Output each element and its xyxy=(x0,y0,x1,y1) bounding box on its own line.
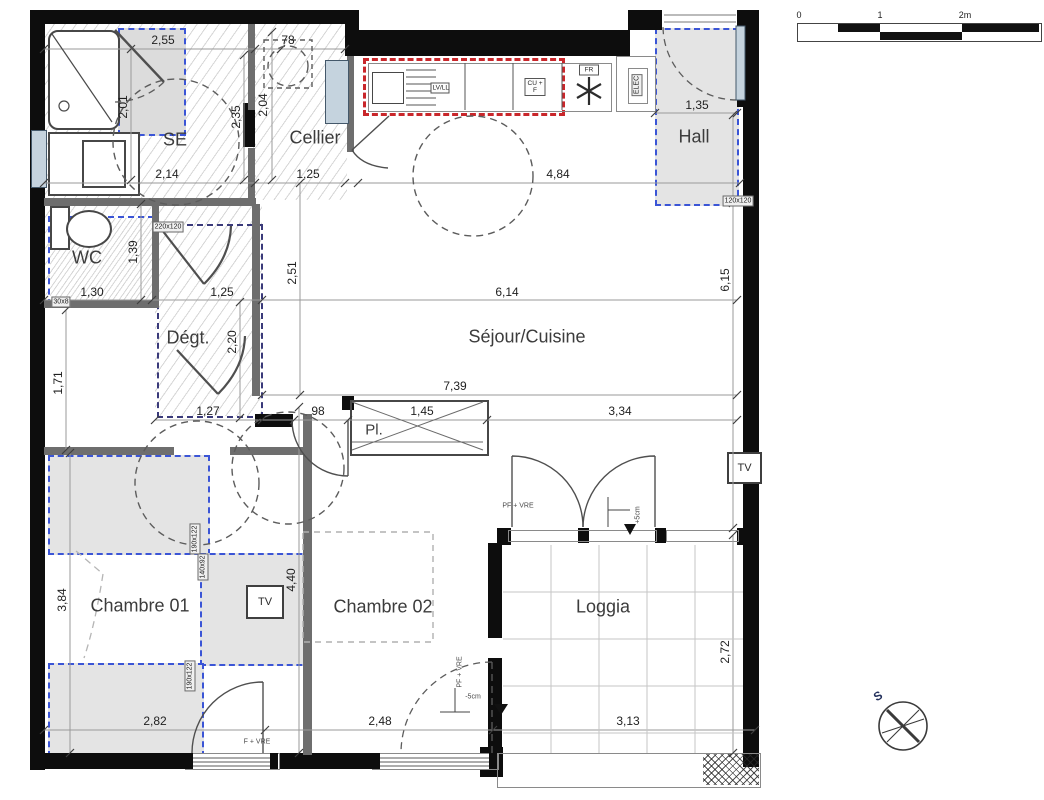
tag-ch1-a: 190x122 xyxy=(190,524,201,555)
dim-loggia-w: 3,13 xyxy=(616,714,639,728)
fridge-asterisk-icon xyxy=(577,77,601,105)
room-label-ch1: Chambre 01 xyxy=(90,596,189,617)
dim-cellier: 1,25 xyxy=(296,167,319,181)
note-plus5: +5cm xyxy=(635,506,642,523)
dim-pl: 1,45 xyxy=(410,404,433,418)
room-label-loggia: Loggia xyxy=(576,597,630,618)
entry-door-leaf xyxy=(664,15,745,100)
dim-hall: 1,35 xyxy=(685,98,708,112)
tag-hall: 120x120 xyxy=(723,196,754,207)
dim-sejour-w2: 7,39 xyxy=(443,379,466,393)
dim-sejour-w: 6,14 xyxy=(495,285,518,299)
dim-degt-w: 1,25 xyxy=(210,285,233,299)
dim-kitchen: 4,84 xyxy=(546,167,569,181)
room-label-hall: Hall xyxy=(678,127,709,148)
dim-se-top: 2,55 xyxy=(151,33,174,47)
dim-se-h2: 2,35 xyxy=(229,105,243,128)
scale-tick-2m: 2m xyxy=(959,10,972,20)
window-glazing-lines xyxy=(193,758,489,766)
room-label-se: SE xyxy=(163,130,187,151)
dim-cellier-h: 2,04 xyxy=(256,93,270,116)
dim-se-h: 2,01 xyxy=(116,95,130,118)
room-label-sejour: Séjour/Cuisine xyxy=(468,327,585,348)
dim-se-bottom: 2,14 xyxy=(155,167,178,181)
compass-icon xyxy=(879,702,927,750)
scale-seg xyxy=(880,32,962,40)
dimension-ticks xyxy=(40,28,759,757)
appliance-cu-f: CU + F xyxy=(525,78,546,96)
scale-tick-1: 1 xyxy=(877,10,882,20)
dim-opening: 98 xyxy=(311,404,324,418)
dim-wc-h: 1,39 xyxy=(126,240,140,263)
tag-ch1-b: 140x92 xyxy=(198,554,209,581)
dim-ch1-w: 2,82 xyxy=(143,714,166,728)
shower-detail xyxy=(52,34,112,122)
dim-sejour-h: 6,15 xyxy=(718,268,732,291)
room-label-wc: WC xyxy=(72,248,102,269)
scale-seg xyxy=(962,24,1039,32)
note-pf-vre: PF + VRE xyxy=(502,503,533,510)
dim-ch1-h: 3,84 xyxy=(55,588,69,611)
appliance-lv-ll: LV/LL xyxy=(431,83,450,94)
floor-plan: TV TV xyxy=(0,0,1044,800)
scale-seg xyxy=(838,24,880,32)
tag-ch1-c: 190x122 xyxy=(185,661,196,692)
dim-loggia-h: 2,72 xyxy=(718,640,732,663)
dim-se-niche: 78 xyxy=(281,33,294,47)
dim-sejour-h2: 2,51 xyxy=(285,261,299,284)
scale-tick-0: 0 xyxy=(796,10,801,20)
tag-elec: ELEC xyxy=(632,74,643,96)
room-label-pl: Pl. xyxy=(365,422,383,439)
dim-sejour-e: 3,34 xyxy=(608,404,631,418)
door-swings xyxy=(115,30,655,753)
dim-corr-h: 1,71 xyxy=(51,371,65,394)
tag-degt: 220x120 xyxy=(153,222,184,233)
plan-linework xyxy=(0,0,1044,800)
dim-corr: 1,27 xyxy=(196,404,219,418)
dim-degt-h: 2,20 xyxy=(225,330,239,353)
dim-wc-w: 1,30 xyxy=(80,285,103,299)
room-label-degt: Dégt. xyxy=(166,328,209,349)
dimension-lines xyxy=(44,32,755,753)
dim-ch2-h: 4,40 xyxy=(284,568,298,591)
note-minus5: -5cm xyxy=(465,694,481,701)
room-label-ch2: Chambre 02 xyxy=(333,597,432,618)
dim-ch2-w: 2,48 xyxy=(368,714,391,728)
appliance-fr: FR xyxy=(579,65,599,76)
room-label-cellier: Cellier xyxy=(289,128,340,149)
tag-wc: 30x8 xyxy=(51,297,70,308)
note-f-vre: F + VRE xyxy=(244,739,271,746)
note-pf-vre-v: PF + VRE xyxy=(457,656,464,687)
